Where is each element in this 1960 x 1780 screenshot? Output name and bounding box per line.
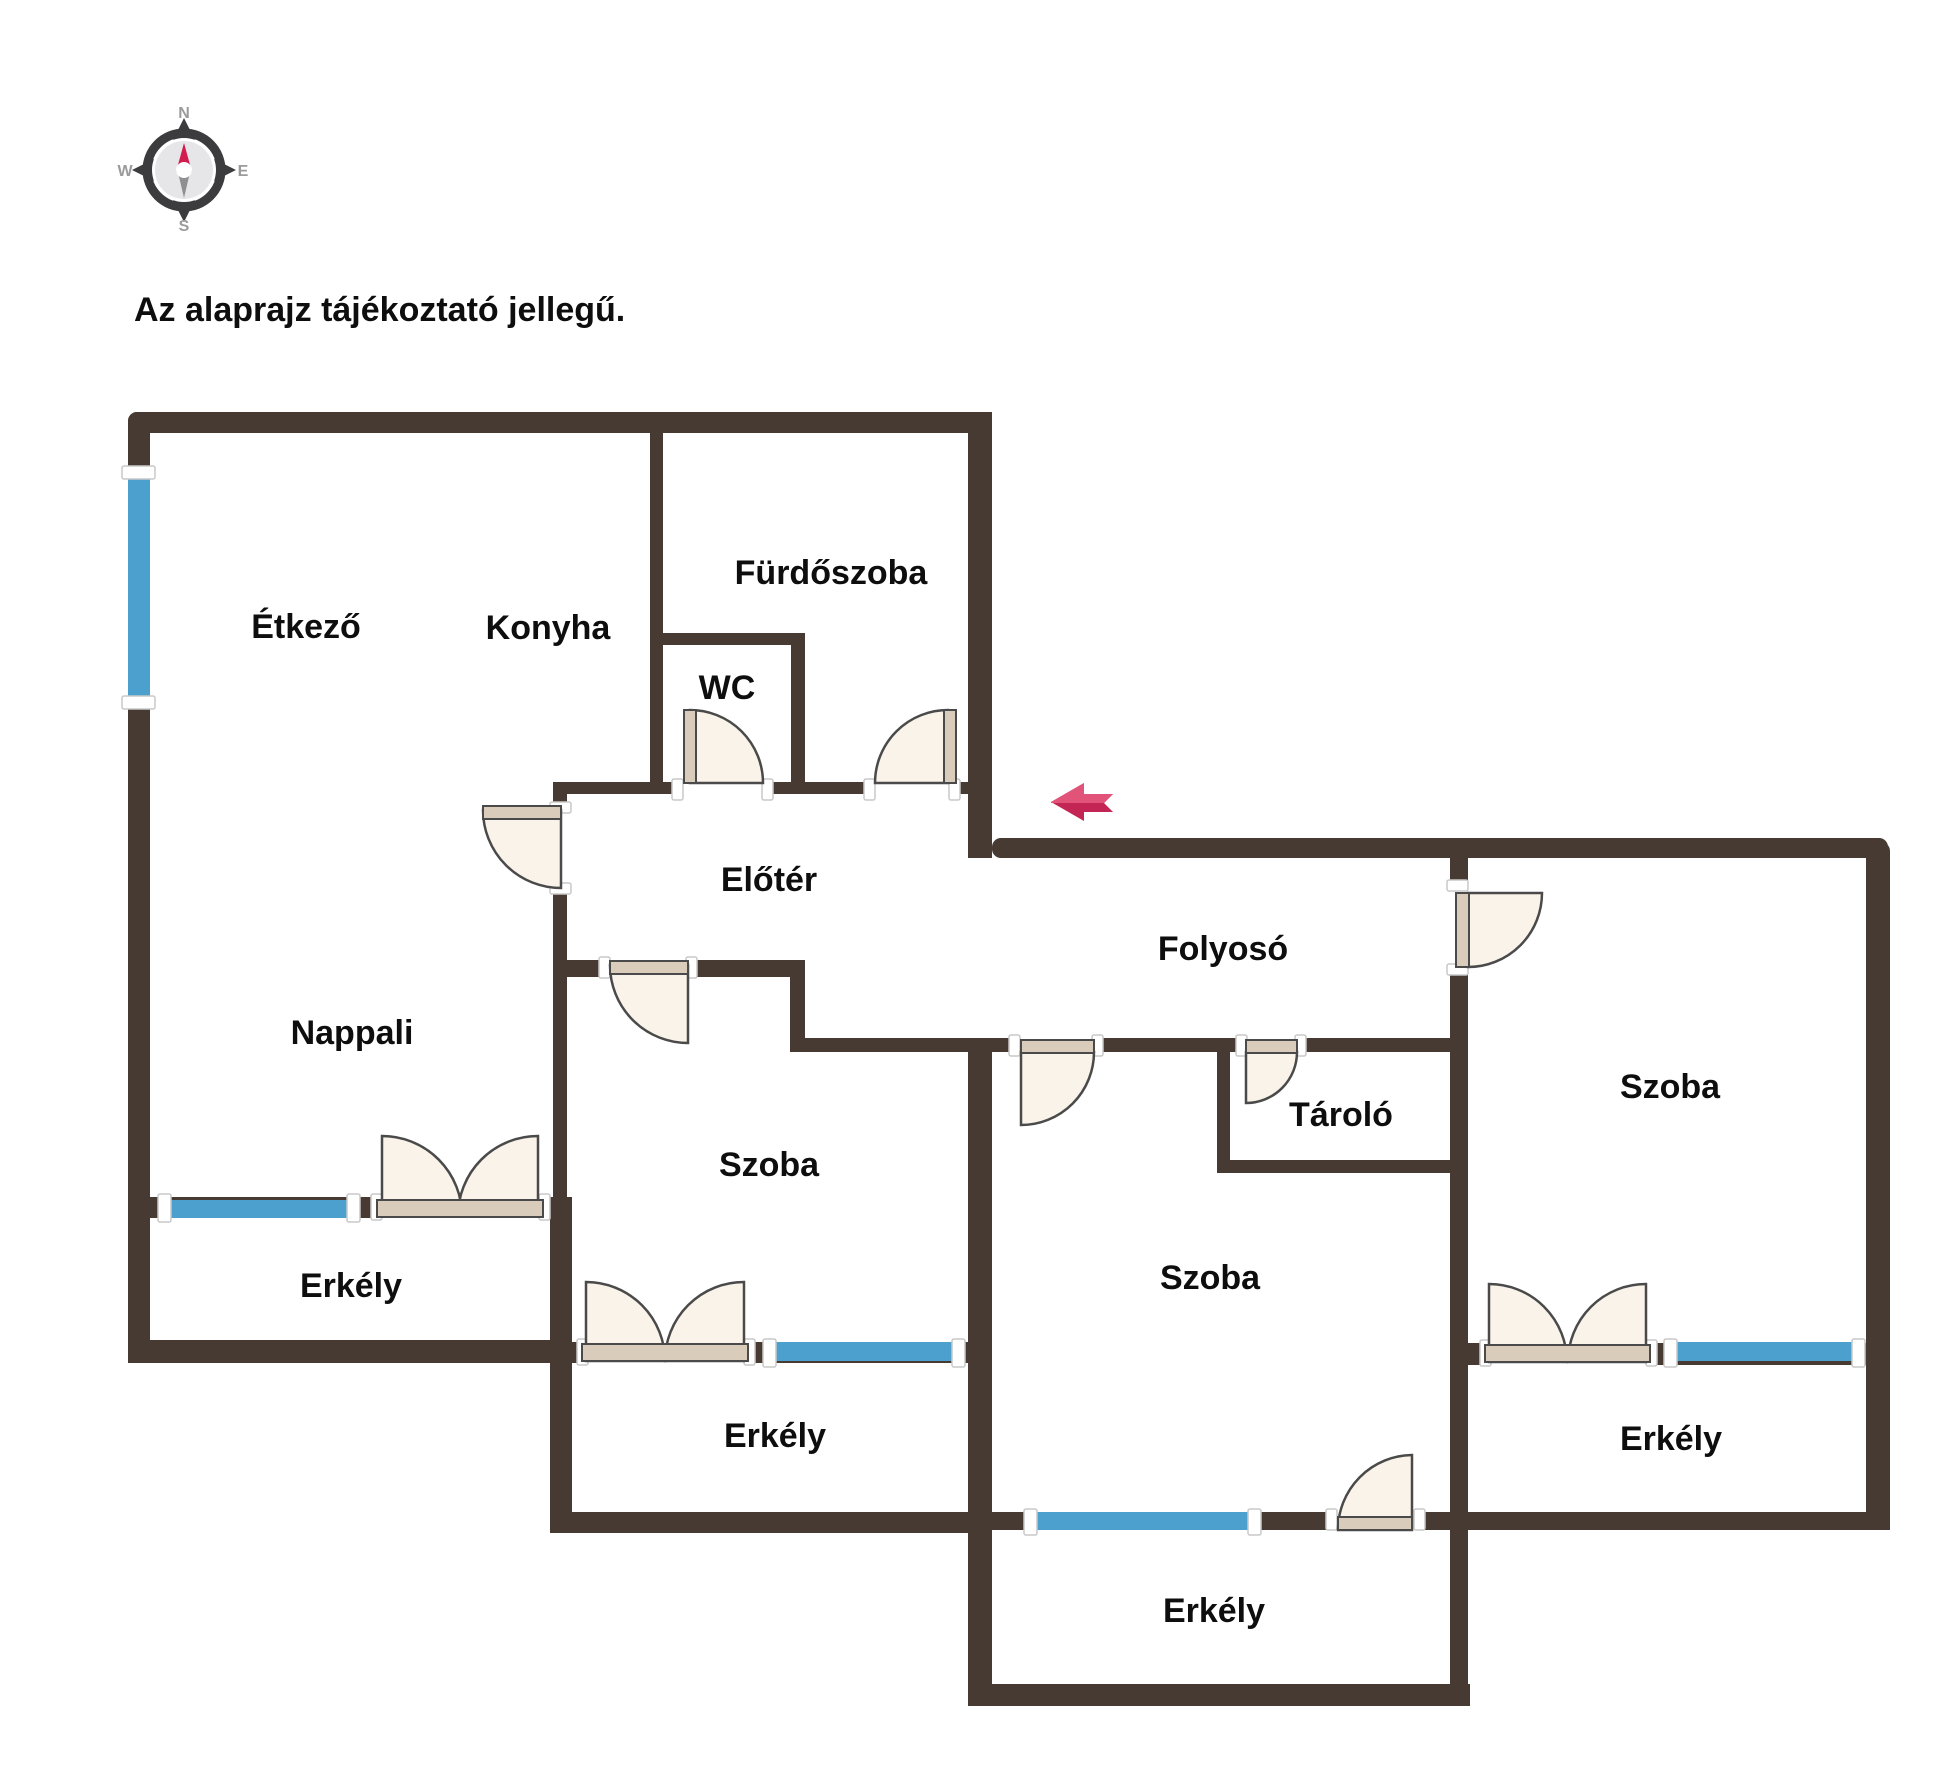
entrance-arrow-highlight [1051,783,1113,803]
window [1033,1512,1250,1530]
room-label-erkely-right: Erkély [1620,1420,1722,1458]
door-leaf [1021,1040,1094,1053]
room-label-etkezo: Étkező [251,608,361,646]
door-swing-wc [690,710,763,783]
compass-icon: N E S W [117,105,248,235]
jamb-cap [158,1194,171,1222]
wall-segment [1450,975,1468,1706]
window [772,1342,955,1361]
door-leaf [1338,1517,1412,1530]
wall-segment [1305,1038,1468,1052]
wall-segment [968,1684,1470,1706]
compass-label-w: W [117,163,133,180]
wall-segment [1866,842,1890,1530]
wall-segment [968,412,992,858]
room-label-erkely-bottom: Erkély [1163,1592,1265,1630]
door-swing-room-right [1468,893,1542,967]
jamb-cap [1248,1509,1261,1535]
room-label-erkely-left: Erkély [300,1267,402,1305]
door-leaf [1246,1040,1297,1053]
page-title: Az alaprajz tájékoztató jellegű. [134,291,625,329]
door-swing-livingroom [483,810,561,888]
door-leaf [944,710,956,783]
wall-segment [563,960,600,977]
door-leaf [610,961,688,974]
wall-segment [1450,858,1468,882]
wall-segment [650,433,663,793]
wall-segment [553,885,567,1197]
floorplan-canvas: N E S W Az alaprajz tájékoztató jellegű.… [0,0,1960,1780]
jamb-caps [122,466,1865,1535]
door-sill [377,1200,543,1217]
jamb-cap [347,1194,360,1222]
jamb-cap [599,957,610,978]
wall-segment [1102,1038,1237,1052]
compass-label-e: E [238,163,249,180]
walls [128,412,1890,1706]
door-leaf [684,710,696,783]
room-label-nappali: Nappali [291,1014,414,1052]
floorplan-page: N E S W Az alaprajz tájékoztató jellegű.… [0,0,1960,1780]
wall-segment [128,412,992,433]
wall-segment [696,960,805,977]
jamb-cap [1326,1509,1337,1530]
jamb-cap [672,779,683,800]
door-leaf [1456,893,1469,967]
window [167,1200,350,1218]
door-sill [1485,1345,1650,1362]
room-label-szoba-left: Szoba [719,1146,820,1184]
wall-segment [1217,1052,1230,1173]
wall-segment [550,1512,992,1533]
jamb-cap [122,696,155,709]
wall-segment [790,977,805,1052]
door-swing-bathroom [875,710,948,783]
door-swing-room-left [610,965,688,1043]
door-sill [582,1344,748,1361]
wall-segment [1217,1160,1468,1173]
wall-segment [1463,1512,1890,1530]
wall-segment [550,1197,572,1533]
jamb-cap [1447,880,1468,891]
compass-label-n: N [178,105,190,122]
jamb-cap [1664,1339,1677,1367]
entrance-arrow-icon [1051,783,1113,821]
room-label-konyha: Konyha [486,609,612,647]
wall-segment [650,633,805,645]
compass-label-s: S [179,218,190,235]
room-label-szoba-right: Szoba [1620,1068,1721,1106]
room-label-wc: WC [699,669,756,707]
window [1673,1342,1855,1361]
jamb-cap [1852,1339,1865,1367]
wall-segment [968,1040,992,1706]
wall-segment [765,782,872,794]
jamb-cap [952,1339,965,1367]
room-label-tarolo: Tároló [1289,1096,1393,1134]
door-leaf [483,806,561,819]
room-label-furdoszoba: Fürdőszoba [735,554,929,592]
jamb-cap [763,1339,776,1367]
room-label-folyoso: Folyosó [1158,930,1288,968]
door-swing-room-middle [1021,1052,1094,1125]
compass-hub [176,162,192,178]
jamb-cap [1024,1509,1037,1535]
room-label-eloter: Előtér [721,861,817,899]
wall-segment [992,838,1888,858]
wall-segment [791,633,805,793]
wall-segment [128,1340,572,1363]
room-label-erkely-midleft: Erkély [724,1417,826,1455]
jamb-cap [1009,1035,1020,1056]
window [128,478,150,697]
room-label-szoba-middle: Szoba [1160,1259,1261,1297]
jamb-cap [122,466,155,479]
jamb-cap [1414,1509,1425,1530]
jamb-cap [864,779,875,800]
